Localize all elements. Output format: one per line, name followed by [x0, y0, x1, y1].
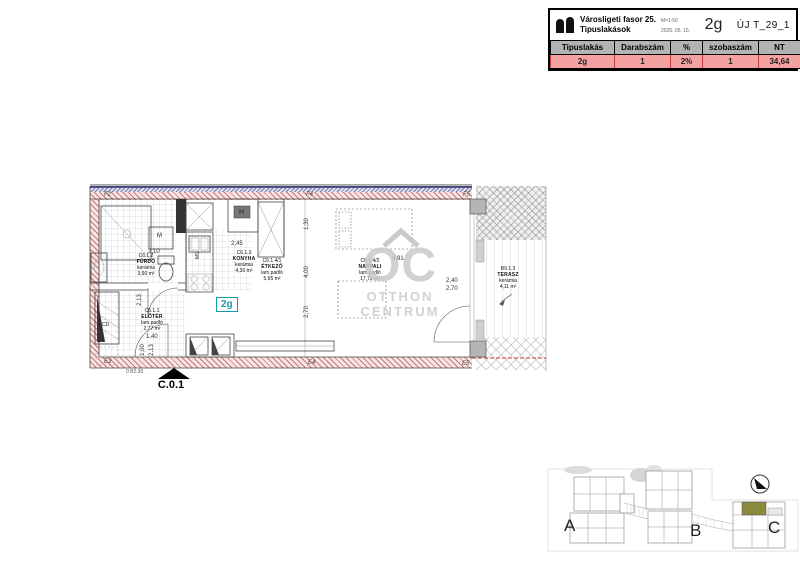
dishwasher-label: MG: [195, 251, 201, 259]
wall-label-f5: F5: [463, 192, 470, 198]
project-titles: Városligeti fasor 25. M=1:50 Tipuslakáso…: [580, 15, 690, 35]
shower: [101, 206, 151, 260]
room-label-terasz: B9.1.3 TERASZ kerámia 4,11 m²: [486, 266, 530, 290]
bottom-shafts: [186, 334, 334, 357]
washer-label: M: [157, 233, 162, 239]
room-label-furdo: C6.1.2 FÜRDŐ kerámia 3,90 m²: [128, 253, 164, 277]
compass-icon: [751, 475, 769, 493]
dim-door-width: 2,40: [446, 278, 458, 284]
dim-door-height: 2,70: [446, 286, 458, 292]
dim-living-width: 4,91: [392, 256, 404, 262]
summary-header-row: Tipuslakás Darabszám % szobaszám NT: [551, 41, 800, 55]
watermark-roof-icon: [384, 231, 418, 246]
dim-entry-2: 2,13: [149, 338, 157, 362]
dim-hall-height: 2,13: [137, 288, 145, 312]
drawing-sheet: Városligeti fasor 25. M=1:50 Tipuslakáso…: [0, 0, 800, 565]
dim-v1: 1,30: [304, 212, 312, 236]
floor-plan-linework: [85, 180, 555, 400]
wall-label-e4: E4: [308, 360, 315, 366]
building-b-label: B: [690, 521, 701, 541]
dim-entry-1: 1,00: [140, 338, 148, 362]
col-darabszam: Darabszám: [615, 41, 671, 55]
kitchen-counter: [186, 232, 213, 292]
cell-nt: 34,64: [759, 55, 800, 69]
dim-v3: 2,70: [304, 300, 312, 324]
col-szobaszam: szobaszám: [703, 41, 759, 55]
title-block: Városligeti fasor 25. M=1:50 Tipuslakáso…: [548, 8, 798, 71]
key-plan: [545, 463, 800, 563]
entrance-note: 0 B2.30: [126, 369, 143, 375]
unit-tag: 2g: [216, 297, 238, 312]
wall-label-e3: E3: [104, 359, 111, 365]
summary-data-row: 2g 1 2% 1 34,64: [551, 55, 800, 69]
door-arcs: [135, 288, 470, 357]
unit-code: 2g: [696, 16, 731, 34]
building-a-label: A: [564, 516, 575, 536]
drawing-code: ÚJ T_29_1: [737, 20, 790, 31]
wall-label-f4: F4: [306, 192, 313, 198]
dim-bath-width: 2,10: [148, 249, 160, 255]
shaft-label: H: [239, 209, 244, 216]
building-b: [646, 471, 692, 543]
cell-tipuslakas: 2g: [551, 55, 615, 69]
room-label-etkezo: C6.1.4/1 ÉTKEZŐ lam.padló 5,95 m²: [250, 258, 294, 282]
dim-kitchen-width: 2,45: [231, 241, 243, 247]
wardrobe: [258, 202, 284, 257]
entrance-marker-icon: [158, 368, 190, 379]
wall-label-e5: E5: [462, 361, 469, 367]
slope-arrow-icon: [499, 294, 512, 306]
dim-v2: 4,00: [304, 260, 312, 284]
sofa-table: [338, 281, 386, 318]
company-logo-icon: [556, 17, 574, 33]
fridge: [186, 203, 213, 230]
highlighted-unit: [742, 502, 766, 515]
date-label: 2025. 05. 15.: [661, 28, 690, 34]
title-block-header: Városligeti fasor 25. M=1:50 Tipuslakáso…: [550, 10, 796, 40]
building-a: [570, 477, 634, 543]
entrance-label: C.0.1: [150, 379, 192, 391]
walls: [90, 186, 546, 371]
cell-darabszam: 1: [615, 55, 671, 69]
summary-table: Tipuslakás Darabszám % szobaszám NT 2g 1…: [550, 40, 800, 69]
cell-percent: 2%: [671, 55, 703, 69]
building-c-label: C: [768, 518, 780, 538]
duct-label: CD: [102, 322, 109, 328]
wall-label-f2: F2: [104, 192, 111, 198]
scale-label: M=1:50: [661, 18, 690, 24]
cell-szobaszam: 1: [703, 55, 759, 69]
project-subtitle: Tipuslakások: [580, 25, 656, 35]
col-tipuslakas: Tipuslakás: [551, 41, 615, 55]
project-title: Városligeti fasor 25.: [580, 15, 656, 25]
room-label-nappali: C6.1.4/2 NAPPALI lam.padló 17,72 m²: [348, 258, 392, 282]
col-percent: %: [671, 41, 703, 55]
col-nt: NT: [759, 41, 800, 55]
